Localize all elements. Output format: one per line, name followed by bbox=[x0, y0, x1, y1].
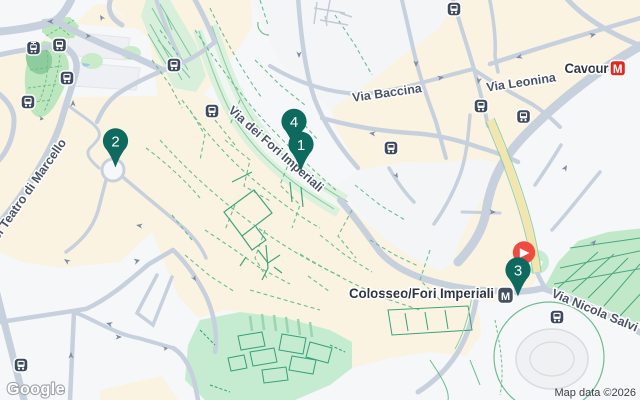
svg-text:M: M bbox=[501, 291, 510, 303]
svg-text:Colosseo/Fori Imperiali: Colosseo/Fori Imperiali bbox=[349, 286, 494, 301]
svg-text:3: 3 bbox=[514, 263, 522, 280]
svg-text:Google: Google bbox=[7, 381, 65, 398]
svg-text:Map data ©2026: Map data ©2026 bbox=[555, 387, 637, 399]
svg-text:M: M bbox=[613, 64, 623, 76]
svg-text:1: 1 bbox=[297, 137, 305, 154]
svg-text:4: 4 bbox=[290, 114, 298, 131]
svg-text:2: 2 bbox=[111, 134, 119, 151]
svg-text:Cavour: Cavour bbox=[565, 61, 610, 76]
